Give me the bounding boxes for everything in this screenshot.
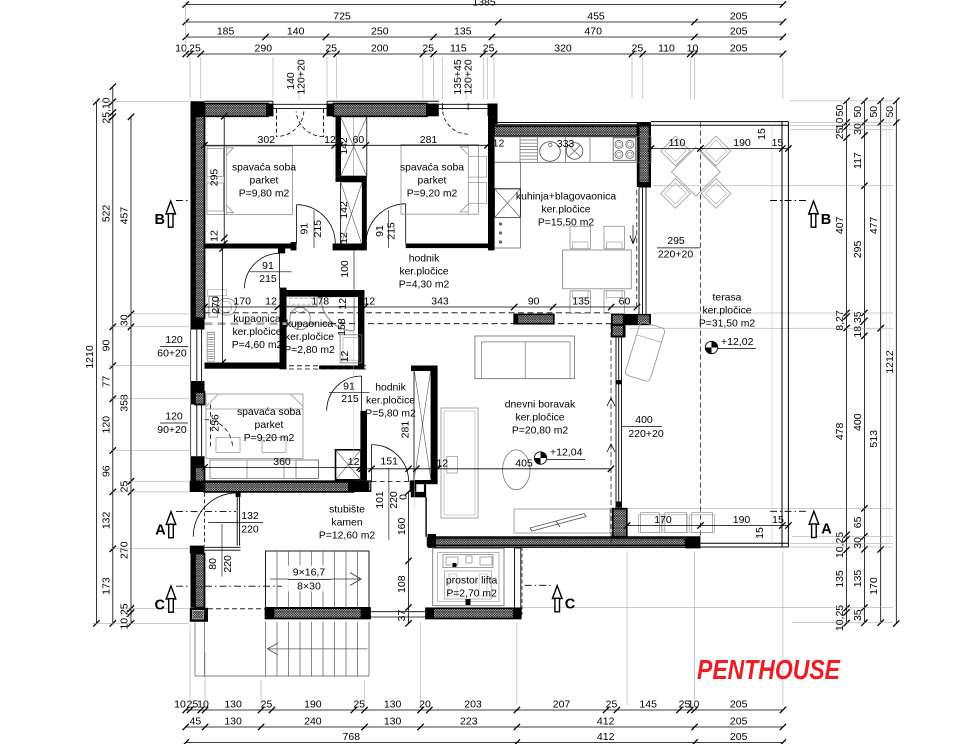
svg-text:91: 91	[262, 260, 274, 272]
svg-text:91: 91	[299, 223, 311, 235]
svg-text:142: 142	[338, 137, 350, 155]
svg-text:+12,02: +12,02	[721, 336, 754, 348]
svg-text:10,25: 10,25	[834, 532, 846, 558]
svg-text:spavaća soba: spavaća soba	[232, 163, 296, 174]
svg-text:100: 100	[339, 260, 351, 278]
svg-text:215: 215	[312, 220, 324, 238]
svg-text:457: 457	[119, 207, 131, 225]
svg-text:132: 132	[100, 511, 112, 529]
svg-text:15: 15	[772, 514, 784, 526]
svg-text:P=4,60 m2: P=4,60 m2	[232, 340, 283, 351]
svg-text:25,10: 25,10	[100, 97, 112, 123]
svg-text:205: 205	[730, 11, 748, 23]
svg-text:250: 250	[371, 26, 389, 38]
svg-text:140: 140	[287, 26, 305, 38]
svg-text:P=5,80 m2: P=5,80 m2	[365, 409, 416, 420]
svg-text:25: 25	[353, 699, 365, 711]
svg-text:108: 108	[396, 575, 408, 593]
svg-text:101: 101	[374, 491, 386, 509]
svg-text:12: 12	[436, 457, 448, 469]
svg-text:12: 12	[265, 296, 277, 308]
svg-text:173: 173	[100, 577, 112, 595]
svg-text:80: 80	[207, 558, 219, 570]
svg-text:ker.pločice: ker.pločice	[702, 306, 751, 317]
svg-text:0: 0	[398, 494, 410, 500]
svg-text:477: 477	[868, 216, 880, 234]
svg-text:400: 400	[852, 413, 864, 431]
svg-text:A: A	[821, 522, 832, 538]
svg-text:12: 12	[337, 298, 349, 310]
svg-text:220: 220	[241, 524, 259, 536]
svg-text:C: C	[565, 597, 576, 613]
svg-text:kuhinja+blagovaonica: kuhinja+blagovaonica	[516, 192, 616, 203]
svg-text:130: 130	[384, 699, 402, 711]
svg-text:10: 10	[174, 699, 186, 711]
svg-text:parket: parket	[250, 176, 279, 187]
svg-text:P=2,80 m2: P=2,80 m2	[284, 345, 335, 356]
svg-text:120+20: 120+20	[296, 59, 308, 94]
svg-text:358: 358	[119, 394, 131, 412]
svg-text:205: 205	[730, 43, 748, 55]
svg-text:ker.pločice: ker.pločice	[399, 267, 448, 278]
svg-text:205: 205	[730, 26, 748, 38]
svg-text:205: 205	[730, 731, 748, 743]
svg-text:96: 96	[100, 465, 112, 477]
svg-text:117: 117	[852, 152, 864, 169]
svg-text:60: 60	[353, 134, 365, 146]
svg-text:405: 405	[515, 457, 533, 469]
svg-text:B: B	[821, 212, 831, 228]
svg-text:50: 50	[884, 106, 896, 118]
svg-text:91: 91	[374, 225, 386, 237]
svg-text:151: 151	[380, 456, 398, 468]
svg-text:270: 270	[210, 296, 222, 314]
svg-text:25: 25	[119, 481, 131, 493]
svg-text:10: 10	[834, 118, 846, 130]
svg-text:190: 190	[733, 514, 751, 526]
svg-text:130: 130	[224, 716, 242, 728]
svg-text:25: 25	[483, 43, 495, 55]
svg-text:90: 90	[528, 296, 540, 308]
svg-text:P=12,60 m2: P=12,60 m2	[319, 531, 376, 542]
svg-text:A: A	[155, 523, 166, 539]
svg-text:ker.pločice: ker.pločice	[285, 332, 334, 343]
svg-text:207: 207	[553, 699, 571, 711]
svg-text:215: 215	[386, 222, 398, 240]
svg-text:135: 135	[852, 570, 864, 588]
svg-text:290: 290	[255, 43, 273, 55]
svg-text:12: 12	[348, 456, 360, 468]
svg-text:470: 470	[584, 26, 602, 38]
svg-text:1385: 1385	[472, 0, 496, 9]
svg-text:478: 478	[834, 422, 846, 440]
svg-text:60+20: 60+20	[157, 348, 187, 360]
svg-text:P=4,30 m2: P=4,30 m2	[399, 280, 450, 291]
svg-text:10: 10	[687, 43, 699, 55]
svg-text:215: 215	[259, 273, 277, 285]
svg-text:stubište: stubište	[329, 505, 365, 516]
svg-text:10,25: 10,25	[119, 603, 131, 629]
svg-text:725: 725	[333, 11, 351, 23]
svg-text:spavaća soba: spavaća soba	[400, 163, 464, 174]
svg-text:170: 170	[654, 514, 672, 526]
svg-text:25: 25	[325, 43, 337, 55]
svg-text:130: 130	[384, 716, 402, 728]
svg-text:35: 35	[852, 609, 864, 621]
svg-text:terasa: terasa	[713, 293, 742, 304]
svg-text:15: 15	[756, 128, 768, 140]
svg-text:320: 320	[554, 43, 572, 55]
svg-text:145: 145	[639, 699, 657, 711]
svg-text:455: 455	[587, 11, 605, 23]
svg-text:parket: parket	[418, 176, 447, 187]
svg-text:50: 50	[868, 106, 880, 118]
svg-text:281: 281	[420, 134, 438, 146]
svg-text:P=9,20 m2: P=9,20 m2	[407, 189, 458, 200]
svg-text:190: 190	[304, 699, 322, 711]
svg-text:dnevni boravak: dnevni boravak	[505, 400, 576, 411]
svg-text:37: 37	[396, 610, 408, 622]
svg-text:ker.pločice: ker.pločice	[366, 396, 415, 407]
svg-text:115: 115	[450, 43, 467, 55]
svg-text:spavaća soba: spavaća soba	[237, 407, 301, 418]
svg-text:200: 200	[371, 43, 389, 55]
svg-text:768: 768	[343, 731, 361, 743]
svg-text:8×30: 8×30	[297, 581, 321, 593]
svg-text:12: 12	[339, 351, 351, 363]
svg-text:90+20: 90+20	[157, 424, 187, 436]
svg-text:270: 270	[119, 541, 131, 559]
svg-text:30: 30	[119, 314, 131, 326]
svg-text:1210: 1210	[84, 345, 96, 369]
svg-text:P=2,70 m2: P=2,70 m2	[446, 589, 497, 600]
svg-text:412: 412	[597, 716, 615, 728]
svg-text:513: 513	[868, 430, 880, 448]
svg-text:C: C	[154, 598, 165, 614]
svg-text:412: 412	[597, 731, 615, 743]
svg-text:P=15,50 m2: P=15,50 m2	[538, 218, 595, 229]
svg-text:120+20: 120+20	[463, 59, 475, 94]
svg-text:60: 60	[619, 296, 631, 308]
svg-text:25: 25	[606, 699, 618, 711]
svg-text:110: 110	[669, 137, 686, 149]
svg-text:12: 12	[363, 296, 375, 308]
svg-text:220+20: 220+20	[658, 248, 693, 260]
svg-text:kamen: kamen	[331, 518, 362, 529]
svg-text:170: 170	[233, 296, 251, 308]
svg-text:parket: parket	[255, 420, 284, 431]
svg-text:15: 15	[754, 527, 766, 539]
svg-text:25: 25	[422, 43, 434, 55]
svg-text:400: 400	[635, 414, 653, 426]
svg-text:407: 407	[834, 216, 846, 234]
svg-text:65: 65	[852, 516, 864, 528]
svg-text:190: 190	[733, 137, 751, 149]
svg-text:240: 240	[304, 716, 322, 728]
svg-text:132: 132	[241, 510, 259, 522]
svg-text:142: 142	[338, 201, 350, 219]
svg-text:302: 302	[258, 134, 276, 146]
svg-text:30: 30	[852, 123, 864, 135]
svg-text:12: 12	[338, 232, 350, 244]
svg-text:18,35: 18,35	[852, 311, 864, 337]
svg-text:B: B	[154, 212, 164, 228]
svg-text:333: 333	[557, 138, 575, 150]
svg-text:10: 10	[197, 699, 209, 711]
svg-text:205: 205	[730, 716, 748, 728]
svg-text:295: 295	[667, 235, 685, 247]
svg-text:170: 170	[868, 577, 880, 595]
svg-text:P=31,50 m2: P=31,50 m2	[699, 319, 756, 330]
svg-text:120: 120	[165, 411, 183, 423]
svg-text:+12,04: +12,04	[550, 447, 583, 459]
svg-text:PENTHOUSE: PENTHOUSE	[697, 654, 841, 685]
svg-text:12: 12	[209, 230, 221, 242]
svg-text:12: 12	[493, 138, 505, 150]
svg-text:220+20: 220+20	[628, 428, 663, 440]
svg-text:1212: 1212	[884, 350, 896, 374]
svg-text:12: 12	[486, 115, 498, 127]
svg-text:ker.pločice: ker.pločice	[232, 327, 281, 338]
svg-text:215: 215	[341, 393, 359, 405]
svg-text:kupaonica: kupaonica	[286, 319, 334, 330]
svg-text:25: 25	[632, 43, 644, 55]
svg-text:343: 343	[431, 296, 449, 308]
svg-text:135: 135	[834, 570, 846, 588]
svg-text:120: 120	[100, 416, 112, 434]
svg-text:P=20,80 m2: P=20,80 m2	[512, 426, 569, 437]
svg-text:P=9,80 m2: P=9,80 m2	[239, 189, 290, 200]
svg-text:120: 120	[165, 334, 183, 346]
svg-text:178: 178	[312, 296, 330, 308]
svg-text:20: 20	[419, 699, 431, 711]
svg-text:295: 295	[852, 240, 864, 258]
svg-text:50: 50	[852, 106, 864, 118]
svg-text:203: 203	[464, 699, 482, 711]
svg-text:158: 158	[336, 318, 348, 336]
svg-text:281: 281	[399, 421, 411, 439]
svg-text:205: 205	[730, 699, 748, 711]
svg-text:160: 160	[396, 517, 408, 535]
svg-text:135: 135	[572, 296, 590, 308]
svg-text:110: 110	[658, 43, 675, 55]
svg-text:91: 91	[343, 380, 355, 392]
svg-text:hodnik: hodnik	[409, 254, 440, 265]
svg-text:90: 90	[100, 340, 112, 352]
svg-text:185: 185	[217, 26, 235, 38]
svg-text:25: 25	[189, 43, 201, 55]
svg-text:135: 135	[454, 26, 472, 38]
svg-text:220: 220	[222, 555, 234, 573]
svg-text:50: 50	[834, 105, 846, 117]
svg-text:77: 77	[100, 376, 112, 388]
svg-text:256: 256	[210, 414, 222, 432]
svg-text:ker.pločice: ker.pločice	[541, 205, 590, 216]
svg-text:25: 25	[261, 699, 273, 711]
svg-text:9×16,7: 9×16,7	[293, 567, 326, 579]
svg-text:hodnik: hodnik	[375, 383, 406, 394]
svg-text:223: 223	[460, 716, 478, 728]
svg-text:prostor lifta: prostor lifta	[446, 576, 498, 587]
svg-text:45: 45	[190, 716, 202, 728]
svg-text:P=9,20 m2: P=9,20 m2	[244, 433, 295, 444]
svg-text:522: 522	[100, 204, 112, 222]
svg-text:12: 12	[324, 134, 336, 146]
svg-text:15: 15	[772, 137, 784, 149]
svg-text:ker.pločice: ker.pločice	[515, 413, 564, 424]
svg-text:360: 360	[273, 456, 291, 468]
svg-text:10: 10	[688, 699, 700, 711]
svg-text:295: 295	[209, 169, 221, 187]
svg-text:10: 10	[175, 43, 187, 55]
svg-text:10,25: 10,25	[834, 605, 846, 631]
svg-text:130: 130	[224, 699, 242, 711]
svg-text:kupaonica: kupaonica	[233, 314, 281, 325]
